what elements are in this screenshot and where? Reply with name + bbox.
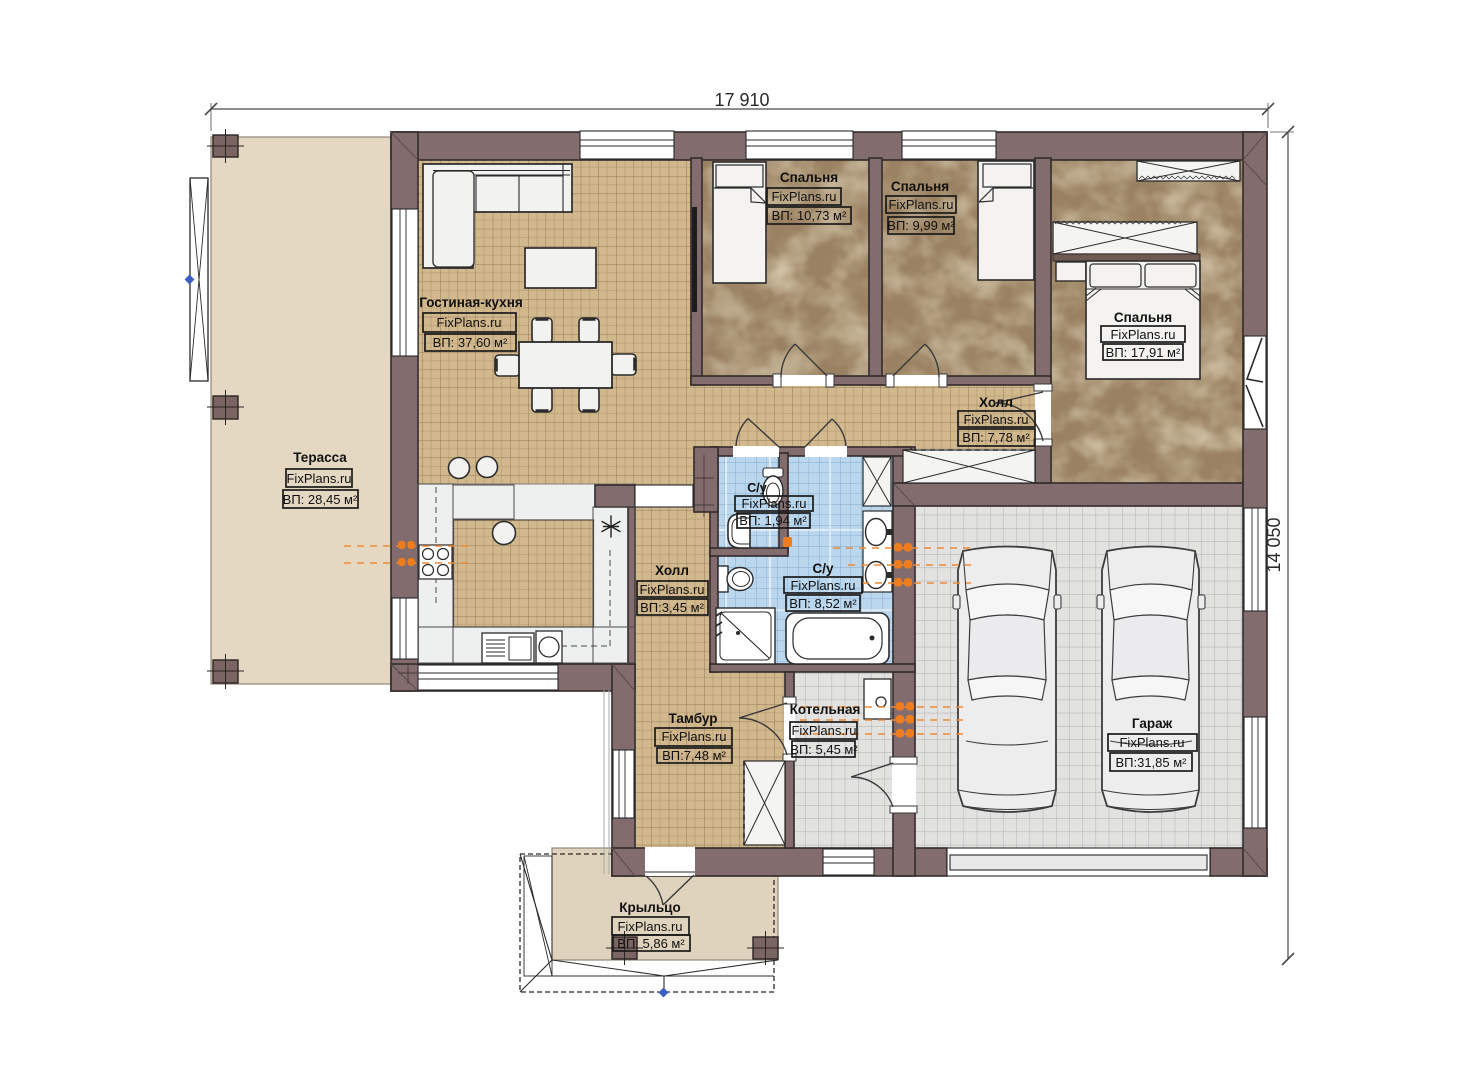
svg-text:17 910: 17 910 (714, 90, 769, 110)
svg-text:Крыльцо: Крыльцо (619, 900, 680, 915)
svg-text:FixPlans.ru: FixPlans.ru (617, 919, 682, 934)
svg-text:Гостиная-кухня: Гостиная-кухня (419, 295, 522, 310)
svg-text:ВП: 28,45 м²: ВП: 28,45 м² (283, 492, 358, 507)
svg-text:Холл: Холл (655, 563, 689, 578)
svg-text:FixPlans.ru: FixPlans.ru (963, 412, 1028, 427)
svg-text:Гараж: Гараж (1132, 716, 1173, 731)
svg-text:Спальня: Спальня (1114, 310, 1172, 325)
svg-text:ВП: 9,99 м²: ВП: 9,99 м² (887, 218, 955, 233)
svg-text:ВП:7,48 м²: ВП:7,48 м² (662, 748, 726, 763)
svg-text:ВП: 5,45 м²: ВП: 5,45 м² (790, 742, 858, 757)
svg-text:FixPlans.ru: FixPlans.ru (1110, 327, 1175, 342)
svg-text:FixPlans.ru: FixPlans.ru (639, 582, 704, 597)
svg-text:ВП: 5,86 м²: ВП: 5,86 м² (617, 936, 685, 951)
svg-text:С/у: С/у (747, 481, 767, 495)
svg-text:ВП: 10,73 м²: ВП: 10,73 м² (772, 208, 847, 223)
svg-text:ВП: 7,78 м²: ВП: 7,78 м² (962, 430, 1030, 445)
svg-text:ВП:31,85 м²: ВП:31,85 м² (1115, 755, 1187, 770)
svg-text:Котельная: Котельная (790, 702, 861, 717)
svg-text:Тамбур: Тамбур (669, 711, 718, 726)
svg-text:FixPlans.ru: FixPlans.ru (888, 197, 953, 212)
svg-text:С/у: С/у (812, 561, 834, 576)
svg-text:FixPlans.ru: FixPlans.ru (286, 471, 351, 486)
svg-text:FixPlans.ru: FixPlans.ru (1119, 735, 1184, 750)
svg-text:14 050: 14 050 (1264, 517, 1284, 572)
svg-text:ВП:3,45 м²: ВП:3,45 м² (640, 600, 704, 615)
svg-text:FixPlans.ru: FixPlans.ru (791, 723, 856, 738)
svg-text:FixPlans.ru: FixPlans.ru (790, 578, 855, 593)
svg-text:Холл: Холл (979, 395, 1013, 410)
svg-text:ВП: 1,94 м²: ВП: 1,94 м² (739, 513, 807, 528)
svg-text:FixPlans.ru: FixPlans.ru (661, 729, 726, 744)
svg-text:ВП: 17,91 м²: ВП: 17,91 м² (1106, 345, 1181, 360)
svg-text:ВП: 8,52 м²: ВП: 8,52 м² (789, 596, 857, 611)
svg-text:Спальня: Спальня (780, 170, 838, 185)
svg-text:Спальня: Спальня (891, 179, 949, 194)
svg-text:FixPlans.ru: FixPlans.ru (771, 189, 836, 204)
svg-text:Терасса: Терасса (293, 450, 347, 465)
svg-text:FixPlans.ru: FixPlans.ru (741, 496, 806, 511)
svg-text:ВП: 37,60 м²: ВП: 37,60 м² (433, 335, 508, 350)
svg-text:FixPlans.ru: FixPlans.ru (436, 315, 501, 330)
